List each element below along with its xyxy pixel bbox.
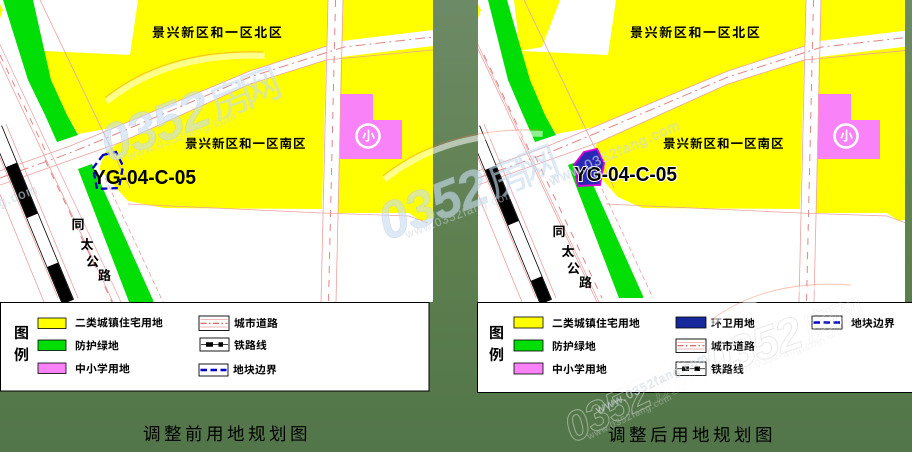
svg-text:YG-04-C-05: YG-04-C-05 bbox=[93, 166, 196, 189]
